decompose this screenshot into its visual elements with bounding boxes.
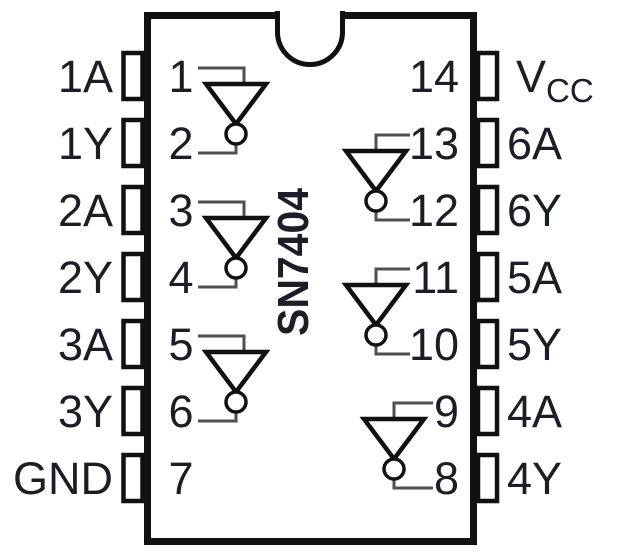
gate2-inversion-bubble-icon: [226, 258, 246, 278]
pin-label-vcc: VCC: [516, 51, 594, 109]
pin-number-13: 13: [409, 118, 459, 169]
pin-label-2a: 2A: [58, 185, 113, 236]
pin-box-4: [124, 254, 143, 300]
pin-number-7: 7: [168, 453, 193, 504]
pin-box-8: [478, 455, 497, 501]
pin-number-14: 14: [409, 51, 459, 102]
pin-box-13: [478, 120, 497, 166]
pin-number-12: 12: [409, 185, 459, 236]
pin-number-6: 6: [168, 386, 193, 437]
pin-number-2: 2: [168, 118, 193, 169]
pin-box-1: [124, 53, 143, 99]
pin-number-8: 8: [434, 453, 459, 504]
pin-label-6a: 6A: [507, 118, 562, 169]
gate5-inversion-bubble-icon: [366, 325, 386, 345]
pin-label-2y: 2Y: [58, 252, 113, 303]
sn7404-pinout-diagram: 1A 1Y 2A 2Y 3A 3Y GND VCC 6A 6Y 5A 5Y 4A…: [0, 0, 618, 555]
pinout-svg: 1A 1Y 2A 2Y 3A 3Y GND VCC 6A 6Y 5A 5Y 4A…: [0, 0, 618, 555]
pin-label-1a: 1A: [58, 51, 113, 102]
right-pin-boxes: [478, 53, 497, 501]
pin-label-6y: 6Y: [507, 185, 562, 236]
gate1-inversion-bubble-icon: [226, 124, 246, 144]
pin-number-5: 5: [168, 319, 193, 370]
left-pin-boxes: [124, 53, 143, 501]
pin-number-11: 11: [412, 252, 459, 303]
pin-label-5y: 5Y: [507, 319, 562, 370]
pin-box-2: [124, 120, 143, 166]
pin-number-10: 10: [409, 319, 459, 370]
pin-box-9: [478, 388, 497, 434]
pin-number-1: 1: [168, 51, 193, 102]
vcc-main-text: V: [516, 51, 546, 102]
gate6-inversion-bubble-icon: [384, 459, 404, 479]
index-notch-icon: [278, 11, 343, 65]
vcc-subscript-text: CC: [546, 72, 594, 109]
pin-label-3y: 3Y: [58, 386, 113, 437]
pin-label-1y: 1Y: [58, 118, 113, 169]
part-number-label: SN7404: [269, 188, 318, 336]
left-pin-numbers: 1 2 3 4 5 6 7: [168, 51, 193, 504]
pin-box-14: [478, 53, 497, 99]
gate4-inversion-bubble-icon: [366, 191, 386, 211]
left-pin-labels: 1A 1Y 2A 2Y 3A 3Y GND: [13, 51, 113, 504]
pin-number-4: 4: [168, 252, 193, 303]
pin-label-3a: 3A: [58, 319, 113, 370]
pin-label-4y: 4Y: [507, 453, 562, 504]
pin-number-3: 3: [168, 185, 193, 236]
pin-box-6: [124, 388, 143, 434]
pin-box-12: [478, 187, 497, 233]
pin-label-gnd: GND: [13, 453, 113, 504]
pin-label-5a: 5A: [507, 252, 562, 303]
pin-box-5: [124, 321, 143, 367]
right-pin-labels: VCC 6A 6Y 5A 5Y 4A 4Y: [507, 51, 594, 504]
pin-box-7: [124, 455, 143, 501]
pin-box-11: [478, 254, 497, 300]
gate3-inversion-bubble-icon: [226, 392, 246, 412]
pin-number-9: 9: [434, 386, 459, 437]
pin-label-4a: 4A: [507, 386, 562, 437]
pin-box-3: [124, 187, 143, 233]
pin-box-10: [478, 321, 497, 367]
